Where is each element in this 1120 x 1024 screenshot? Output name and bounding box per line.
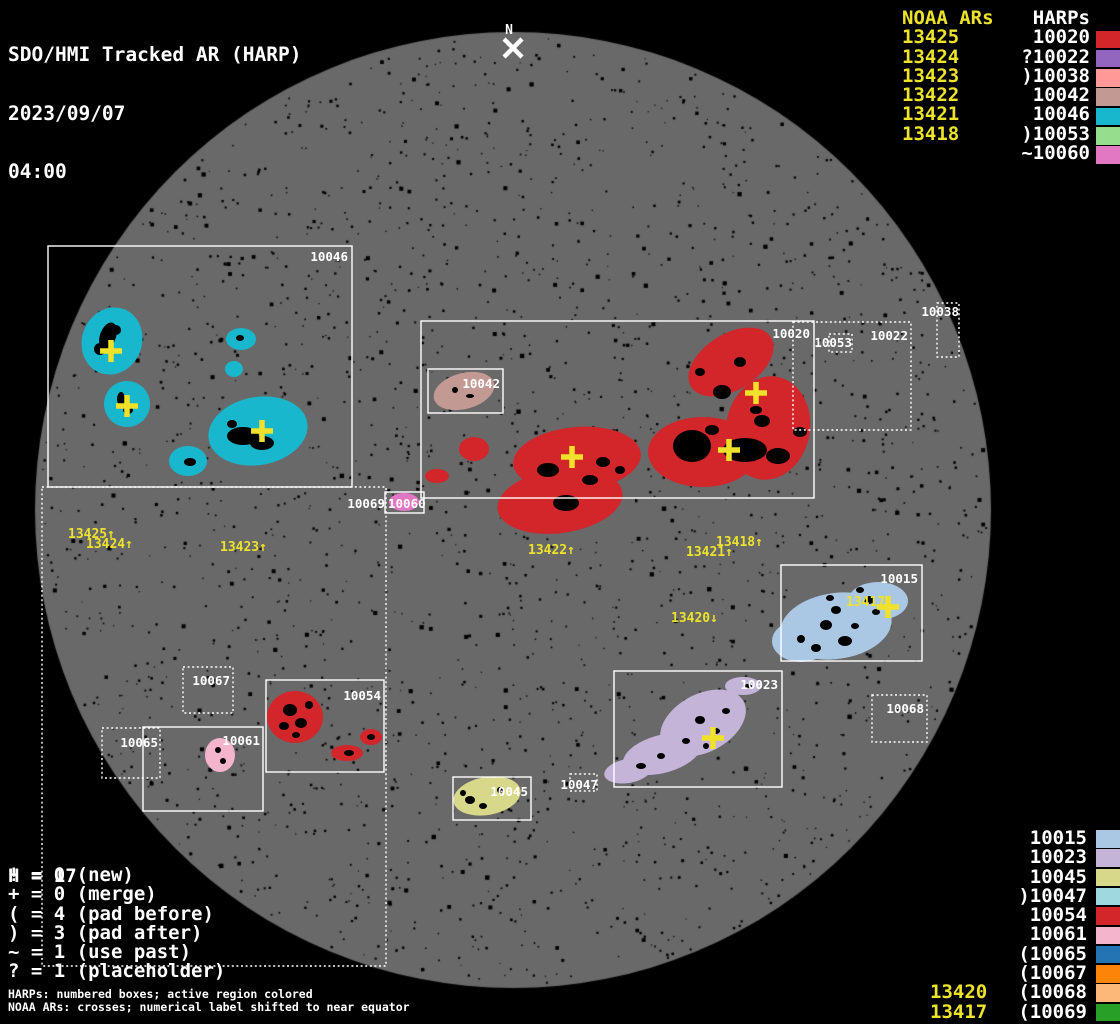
north-x-marker bbox=[504, 39, 522, 57]
noaa-ar-number bbox=[930, 925, 992, 944]
harp-box-label-10061: 10061 bbox=[222, 733, 260, 748]
sunspot bbox=[615, 466, 625, 474]
sunspot bbox=[236, 335, 244, 341]
sunspot bbox=[703, 743, 709, 749]
harp-box-label-10067: 10067 bbox=[192, 673, 230, 688]
harp-box-label-10053: 10053 bbox=[814, 335, 852, 350]
harp-number: ?10022 bbox=[978, 48, 1090, 67]
legend-color-swatch bbox=[1096, 1004, 1120, 1022]
stats-lines: ! = 0 (new)+ = 0 (merge)( = 4 (pad befor… bbox=[8, 866, 225, 982]
ar-region-10046 bbox=[225, 361, 243, 377]
date-label: 2023/09/07 bbox=[8, 104, 302, 124]
noaa-ar-number bbox=[902, 144, 978, 163]
harp-box-label-10069: 10069 bbox=[347, 496, 385, 511]
sunspot bbox=[695, 716, 705, 724]
sunspot bbox=[811, 644, 821, 652]
harp-box-label-10023: 10023 bbox=[740, 677, 778, 692]
legend-color-swatch bbox=[1096, 984, 1120, 1002]
harp-number: (10069 bbox=[992, 1003, 1087, 1022]
sunspot bbox=[305, 701, 313, 709]
stats-line: ? = 1 (placeholder) bbox=[8, 962, 225, 981]
sunspot bbox=[793, 427, 807, 437]
noaa-ar-number: 13418 bbox=[902, 125, 978, 144]
stats-line: ( = 4 (pad before) bbox=[8, 905, 225, 924]
harp-number: 10061 bbox=[992, 925, 1087, 944]
legend-row: ~10060 bbox=[902, 144, 1090, 163]
harp-box-label-10054: 10054 bbox=[343, 688, 381, 703]
tracking-stats: H = 17 ! = 0 (new)+ = 0 (merge)( = 4 (pa… bbox=[8, 828, 77, 944]
sunspot bbox=[295, 718, 307, 728]
sunspot bbox=[695, 368, 705, 376]
legend-color-swatch bbox=[1096, 869, 1120, 887]
harp-box-label-10022: 10022 bbox=[870, 328, 908, 343]
harp-box-label-10038: 10038 bbox=[921, 304, 959, 319]
harp-number: 10023 bbox=[992, 848, 1087, 867]
legend-row: 10023 bbox=[930, 848, 1087, 867]
legend-color-swatch bbox=[1096, 50, 1120, 68]
harp-number: ~10060 bbox=[978, 144, 1090, 163]
noaa-ar-number: 13425 bbox=[902, 28, 978, 47]
noaa-ar-number bbox=[930, 868, 992, 887]
sunspot bbox=[722, 708, 730, 714]
harp-box-label-10047: 10047 bbox=[560, 777, 598, 792]
app-title: SDO/HMI Tracked AR (HARP) bbox=[8, 45, 302, 65]
sunspot bbox=[838, 636, 852, 646]
legend-top: NOAA ARs HARPs 13425 1002013424?10022134… bbox=[902, 9, 1090, 163]
legend-color-swatch bbox=[1096, 830, 1120, 848]
legend-color-swatch bbox=[1096, 31, 1120, 49]
legend-color-swatch bbox=[1096, 907, 1120, 925]
noaa-ar-number bbox=[930, 945, 992, 964]
sunspot bbox=[283, 704, 297, 716]
legend-color-swatch bbox=[1096, 127, 1120, 145]
legend-color-swatch bbox=[1096, 965, 1120, 983]
sunspot bbox=[851, 623, 859, 629]
sunspot bbox=[713, 385, 731, 399]
noaa-ar-number bbox=[930, 887, 992, 906]
sunspot bbox=[344, 750, 354, 756]
sunspot bbox=[466, 394, 474, 398]
sunspot bbox=[820, 620, 832, 630]
harp-number: (10068 bbox=[992, 983, 1087, 1002]
legend-bottom: 10015 10023 10045)10047 10054 10061(1006… bbox=[930, 829, 1087, 1022]
harp-box-label-10068: 10068 bbox=[886, 701, 924, 716]
legend-color-swatch bbox=[1096, 927, 1120, 945]
legend-top-rows: 13425 1002013424?1002213423)1003813422 1… bbox=[902, 28, 1090, 163]
noaa-ar-label: 13422↑ bbox=[528, 543, 575, 558]
harp-box-label-10065: 10065 bbox=[120, 735, 158, 750]
legend-row: 10061 bbox=[930, 925, 1087, 944]
sunspot bbox=[750, 406, 762, 414]
noaa-ar-number: 13420 bbox=[930, 983, 992, 1002]
legend-color-swatch bbox=[1096, 146, 1120, 164]
sunspot bbox=[734, 357, 746, 367]
legend-color-swatch bbox=[1096, 69, 1120, 87]
sunspot bbox=[826, 595, 834, 601]
noaa-ar-label: 13420↓ bbox=[671, 611, 718, 626]
harp-box-label-10046: 10046 bbox=[310, 249, 348, 264]
sunspot bbox=[279, 722, 289, 730]
sunspot bbox=[636, 763, 646, 769]
legend-row: 13420(10068 bbox=[930, 983, 1087, 1002]
legend-bottom-rows: 10015 10023 10045)10047 10054 10061(1006… bbox=[930, 829, 1087, 1022]
legend-row: 13425 10020 bbox=[902, 28, 1090, 47]
noaa-ar-number bbox=[930, 829, 992, 848]
sunspot bbox=[596, 457, 610, 467]
noaa-ar-number: 13417 bbox=[930, 1003, 992, 1022]
sunspot bbox=[537, 463, 559, 477]
sunspot bbox=[766, 448, 790, 464]
sunspot bbox=[227, 420, 237, 428]
sunspot bbox=[754, 415, 770, 427]
noaa-ar-number: 13421 bbox=[902, 105, 978, 124]
legend-color-swatch bbox=[1096, 88, 1120, 106]
noaa-ar-label: 13423↑ bbox=[220, 540, 267, 555]
harp-number: 10020 bbox=[978, 28, 1090, 47]
sunspot bbox=[831, 606, 841, 614]
sunspot bbox=[111, 325, 121, 335]
sunspot bbox=[220, 758, 226, 764]
harp-box-label-10045: 10045 bbox=[490, 784, 528, 799]
legend-color-swatch bbox=[1096, 108, 1120, 126]
sunspot bbox=[856, 587, 864, 593]
ar-region-10042 bbox=[429, 366, 498, 417]
harp-frame: 1004610020100421002210053100381001510023… bbox=[0, 0, 1120, 1024]
sunspot bbox=[705, 425, 719, 435]
sunspot bbox=[460, 790, 466, 796]
legend-row: 10045 bbox=[930, 868, 1087, 887]
sunspot bbox=[673, 430, 711, 462]
harp-number: 10045 bbox=[992, 868, 1087, 887]
sunspot bbox=[682, 738, 690, 744]
noaa-ar-label: 13418↑ bbox=[716, 535, 763, 550]
footnote-line: NOAA ARs: crosses; numerical label shift… bbox=[8, 1001, 410, 1014]
sunspot bbox=[215, 747, 221, 753]
time-label: 04:00 bbox=[8, 162, 302, 182]
footnotes: HARPs: numbered boxes; active region col… bbox=[8, 988, 410, 1014]
noaa-ar-label: 13424↑ bbox=[86, 537, 133, 552]
sunspot bbox=[465, 796, 475, 804]
legend-row: 13421 10046 bbox=[902, 105, 1090, 124]
sunspot bbox=[797, 635, 805, 643]
ar-region-10020 bbox=[425, 469, 449, 483]
harp-number: 10046 bbox=[978, 105, 1090, 124]
sunspot bbox=[582, 475, 598, 485]
north-label: N bbox=[505, 23, 513, 38]
sunspot bbox=[479, 803, 487, 809]
noaa-ar-number: 13424 bbox=[902, 48, 978, 67]
noaa-ar-label: 13417↓ bbox=[846, 595, 893, 610]
sunspot bbox=[657, 753, 665, 759]
harp-box-label-10060: 10060 bbox=[388, 496, 426, 511]
title-block: SDO/HMI Tracked AR (HARP) 2023/09/07 04:… bbox=[8, 6, 302, 221]
harp-box-label-10015: 10015 bbox=[880, 571, 918, 586]
ar-region-10020 bbox=[459, 437, 489, 461]
sunspot bbox=[292, 732, 300, 738]
legend-color-swatch bbox=[1096, 849, 1120, 867]
sunspot bbox=[367, 734, 375, 740]
legend-color-swatch bbox=[1096, 946, 1120, 964]
sunspot bbox=[452, 387, 458, 393]
legend-row: 13424?10022 bbox=[902, 48, 1090, 67]
legend-color-swatch bbox=[1096, 888, 1120, 906]
noaa-ar-number bbox=[930, 906, 992, 925]
harp-box-label-10042: 10042 bbox=[462, 376, 500, 391]
noaa-ar-number bbox=[930, 848, 992, 867]
legend-row: 13417(10069 bbox=[930, 1003, 1087, 1022]
sunspot bbox=[184, 458, 196, 466]
harp-box-label-10020: 10020 bbox=[772, 326, 810, 341]
stats-line: + = 0 (merge) bbox=[8, 885, 225, 904]
